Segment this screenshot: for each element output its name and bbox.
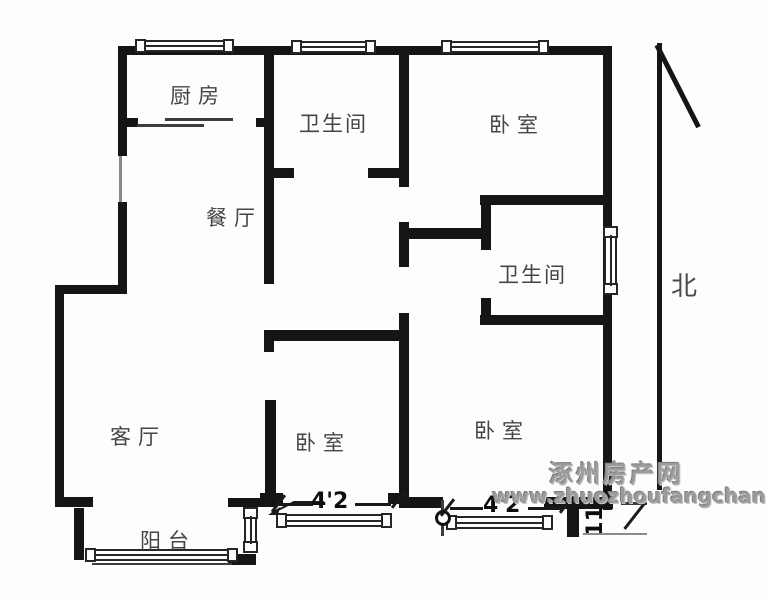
room-label-balcony: 阳台: [140, 529, 196, 553]
wall-west-upper: [118, 46, 127, 156]
window-glass-line: [450, 46, 540, 48]
room-label-bathroom-top: 卫生间: [299, 112, 368, 136]
wall-ensuite-west-upper: [481, 195, 491, 250]
wall-central-divider: [264, 46, 274, 284]
balcony-sill-line: [92, 563, 232, 565]
wall-bedroom-mid-west-upper: [264, 330, 274, 352]
wall-bedroom-right-south-return: [567, 509, 579, 537]
room-label-bedroom-top-right: 卧室: [489, 113, 545, 137]
wall-bath-bedroom-divider: [399, 46, 409, 187]
room-label-kitchen: 厨房: [170, 84, 226, 108]
wall-bedroom-mid-north: [264, 330, 409, 341]
wall-west-jog: [55, 285, 127, 294]
dimension-line: [355, 503, 391, 506]
wall-bedroom-mid-west-lower: [265, 400, 276, 500]
kitchen-window: [135, 40, 234, 52]
watermark-site-url: www.zhuozhoufangchan.com: [492, 484, 766, 508]
north-label: 北: [671, 266, 697, 303]
dimension-line: [450, 507, 483, 510]
dimension-label-bedroom-mid: 4'2: [311, 491, 348, 513]
room-label-dining: 餐厅: [206, 206, 262, 230]
sliding-door-line-b: [137, 124, 204, 127]
wall-west-lower: [55, 285, 64, 506]
wall-sw-stub: [55, 497, 93, 507]
dimension-line: [583, 533, 647, 535]
dimension-line: [279, 503, 313, 506]
window-glass-line: [250, 516, 252, 544]
window-glass-line: [144, 45, 225, 47]
bathroom-top-window: [291, 41, 376, 53]
north-arrow-line: [657, 43, 662, 490]
window-glass-line: [455, 522, 544, 524]
wall-bath-top-south-left: [264, 168, 294, 178]
bedroom-top-right-window: [441, 41, 549, 53]
wall-hall-to-ensuite: [405, 228, 490, 239]
wall-ensuite-south: [480, 315, 612, 325]
room-label-bathroom-ensuite: 卫生间: [498, 263, 567, 287]
wall-ensuite-north: [480, 195, 612, 205]
balcony-side-door-window: [244, 507, 257, 553]
ensuite-east-window: [604, 226, 617, 295]
window-glass-line: [300, 46, 367, 48]
room-label-bedroom-bottom-middle: 卧室: [295, 431, 351, 455]
window-glass-line: [610, 235, 612, 286]
sliding-door-line-a: [165, 118, 233, 121]
wall-west-opening-line: [119, 156, 122, 202]
wall-bedroom-right-south-left: [399, 497, 443, 508]
window-glass-line: [94, 554, 229, 556]
wall-west-mid: [118, 202, 127, 293]
room-label-living: 客厅: [110, 425, 166, 449]
room-label-bedroom-bottom-right: 卧室: [474, 419, 530, 443]
floorplan-canvas: 北 厨房 卫生间 卧室 餐厅 卫生间 客厅 卧室 卧室 阳台 4'2 4'2 1…: [0, 0, 766, 600]
wall-balcony-west: [74, 508, 84, 560]
